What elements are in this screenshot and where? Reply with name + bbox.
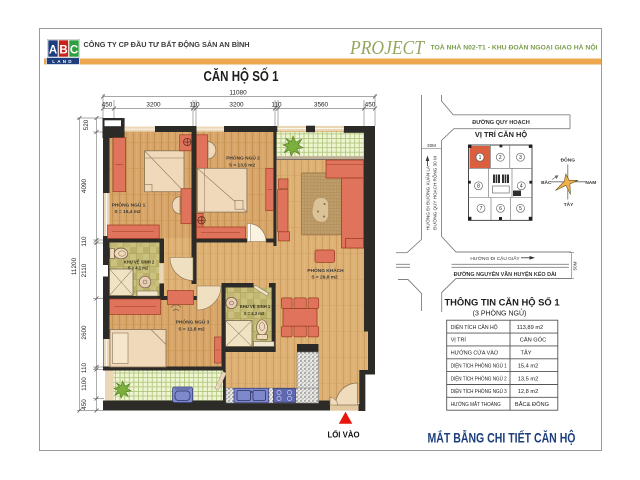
svg-text:110: 110: [81, 362, 88, 373]
svg-text:CĂN HỘ SỐ 1: CĂN HỘ SỐ 1: [204, 67, 279, 85]
svg-text:DIỆN TÍCH PHÒNG NGỦ 2: DIỆN TÍCH PHÒNG NGỦ 2: [451, 374, 507, 382]
svg-text:HƯỚNG CỬA VÀO: HƯỚNG CỬA VÀO: [451, 350, 498, 357]
svg-text:113,89 m2: 113,89 m2: [517, 325, 543, 331]
svg-text:110: 110: [81, 236, 88, 247]
svg-text:S = 4,3 m2: S = 4,3 m2: [244, 311, 265, 316]
svg-text:TOÀ NHÀ N02-T1 - KHU ĐOÀN NGOẠ: TOÀ NHÀ N02-T1 - KHU ĐOÀN NGOẠI GIAO HÀ …: [431, 43, 598, 52]
svg-text:7: 7: [480, 206, 483, 212]
svg-text:KHU VỆ SINH 2: KHU VỆ SINH 2: [124, 260, 155, 265]
svg-text:3: 3: [519, 155, 522, 161]
svg-text:2110: 2110: [81, 263, 88, 277]
svg-text:DIỆN TÍCH CĂN HỘ: DIỆN TÍCH CĂN HỘ: [451, 323, 498, 331]
svg-text:C: C: [70, 44, 78, 56]
svg-text:S = 13,5 m2: S = 13,5 m2: [229, 163, 256, 169]
svg-text:MẮT BẪNG CHI TIẾT CĂN HỘ: MẮT BẪNG CHI TIẾT CĂN HỘ: [428, 429, 576, 446]
svg-text:13,5 m2: 13,5 m2: [518, 376, 539, 382]
svg-text:CĂN GÓC: CĂN GÓC: [520, 337, 547, 344]
svg-text:TÂY: TÂY: [520, 350, 531, 357]
svg-text:(3 PHÒNG NGỦ): (3 PHÒNG NGỦ): [473, 309, 527, 318]
svg-text:110: 110: [271, 102, 282, 109]
svg-text:6: 6: [499, 206, 502, 212]
svg-text:LỐI VÀO: LỐI VÀO: [327, 430, 359, 440]
svg-text:NAM: NAM: [585, 180, 596, 186]
svg-text:520: 520: [83, 119, 90, 130]
svg-text:THÔNG TIN CĂN HỘ SỐ 1: THÔNG TIN CĂN HỘ SỐ 1: [444, 297, 559, 308]
svg-text:DIỆN TÍCH PHÒNG NGỦ 3: DIỆN TÍCH PHÒNG NGỦ 3: [451, 387, 507, 395]
svg-text:B: B: [59, 44, 67, 56]
svg-text:BẮC& ĐÔNG: BẮC& ĐÔNG: [515, 400, 549, 408]
svg-text:HƯỚNG MẮT THOÁNG: HƯỚNG MẮT THOÁNG: [451, 400, 501, 408]
svg-text:3560: 3560: [314, 102, 329, 109]
svg-text:S = 12,8 m2: S = 12,8 m2: [178, 327, 205, 333]
svg-text:KHU VỆ SINH 1: KHU VỆ SINH 1: [240, 304, 271, 309]
svg-text:A: A: [49, 44, 57, 56]
svg-text:11080: 11080: [229, 90, 247, 97]
svg-text:450: 450: [365, 102, 376, 109]
svg-text:110: 110: [189, 102, 200, 109]
svg-text:TÂY: TÂY: [564, 201, 574, 208]
svg-text:30M: 30M: [427, 143, 436, 148]
svg-text:1: 1: [479, 155, 482, 161]
svg-text:2: 2: [499, 155, 502, 161]
svg-text:S = 4,1 m2: S = 4,1 m2: [128, 266, 149, 271]
svg-text:3200: 3200: [229, 102, 244, 109]
svg-text:HƯỚNG ĐI CẬU GIẤY: HƯỚNG ĐI CẬU GIẤY: [470, 255, 520, 262]
svg-text:3200: 3200: [146, 102, 161, 109]
svg-text:PROJECT: PROJECT: [349, 37, 426, 59]
svg-text:1100: 1100: [81, 377, 88, 391]
svg-text:ĐƯỜNG QUY HOẠCH RỘNG 30 M: ĐƯỜNG QUY HOẠCH RỘNG 30 M: [432, 156, 438, 230]
svg-text:50M: 50M: [573, 261, 578, 270]
svg-text:450: 450: [81, 399, 88, 410]
svg-text:11200: 11200: [71, 257, 78, 275]
svg-text:VỊ TRÍ: VỊ TRÍ: [451, 337, 467, 344]
svg-text:DIỆN TÍCH PHÒNG NGỦ 1: DIỆN TÍCH PHÒNG NGỦ 1: [451, 361, 507, 369]
svg-text:4090: 4090: [81, 178, 88, 193]
svg-text:VỊ TRÍ CĂN HỘ: VỊ TRÍ CĂN HỘ: [475, 130, 527, 139]
svg-text:5: 5: [519, 206, 522, 212]
svg-text:CÔNG TY CP ĐẦU TƯ BẤT ĐỘNG SẢN: CÔNG TY CP ĐẦU TƯ BẤT ĐỘNG SẢN AN BÌNH: [84, 39, 250, 49]
svg-text:LAND: LAND: [52, 59, 74, 64]
svg-text:ĐƯỜNG QUY HOẠCH: ĐƯỜNG QUY HOẠCH: [472, 118, 529, 126]
svg-text:HƯỚNG ĐI ĐƯỜNG XUÂN LA: HƯỚNG ĐI ĐƯỜNG XUÂN LA: [425, 165, 431, 230]
svg-text:450: 450: [102, 102, 113, 109]
svg-text:2600: 2600: [81, 325, 88, 340]
svg-text:15,4 m2: 15,4 m2: [518, 363, 539, 369]
svg-text:4: 4: [520, 184, 523, 190]
svg-text:12,8 m2: 12,8 m2: [518, 389, 539, 395]
svg-text:ĐƯỜNG NGUYỄN VĂN HUYỆN KÉO DÀI: ĐƯỜNG NGUYỄN VĂN HUYỆN KÉO DÀI: [454, 270, 557, 278]
svg-text:S = 15,4 m2: S = 15,4 m2: [114, 209, 141, 215]
svg-text:8: 8: [477, 184, 480, 190]
svg-text:S = 29,8 m2: S = 29,8 m2: [311, 275, 338, 281]
